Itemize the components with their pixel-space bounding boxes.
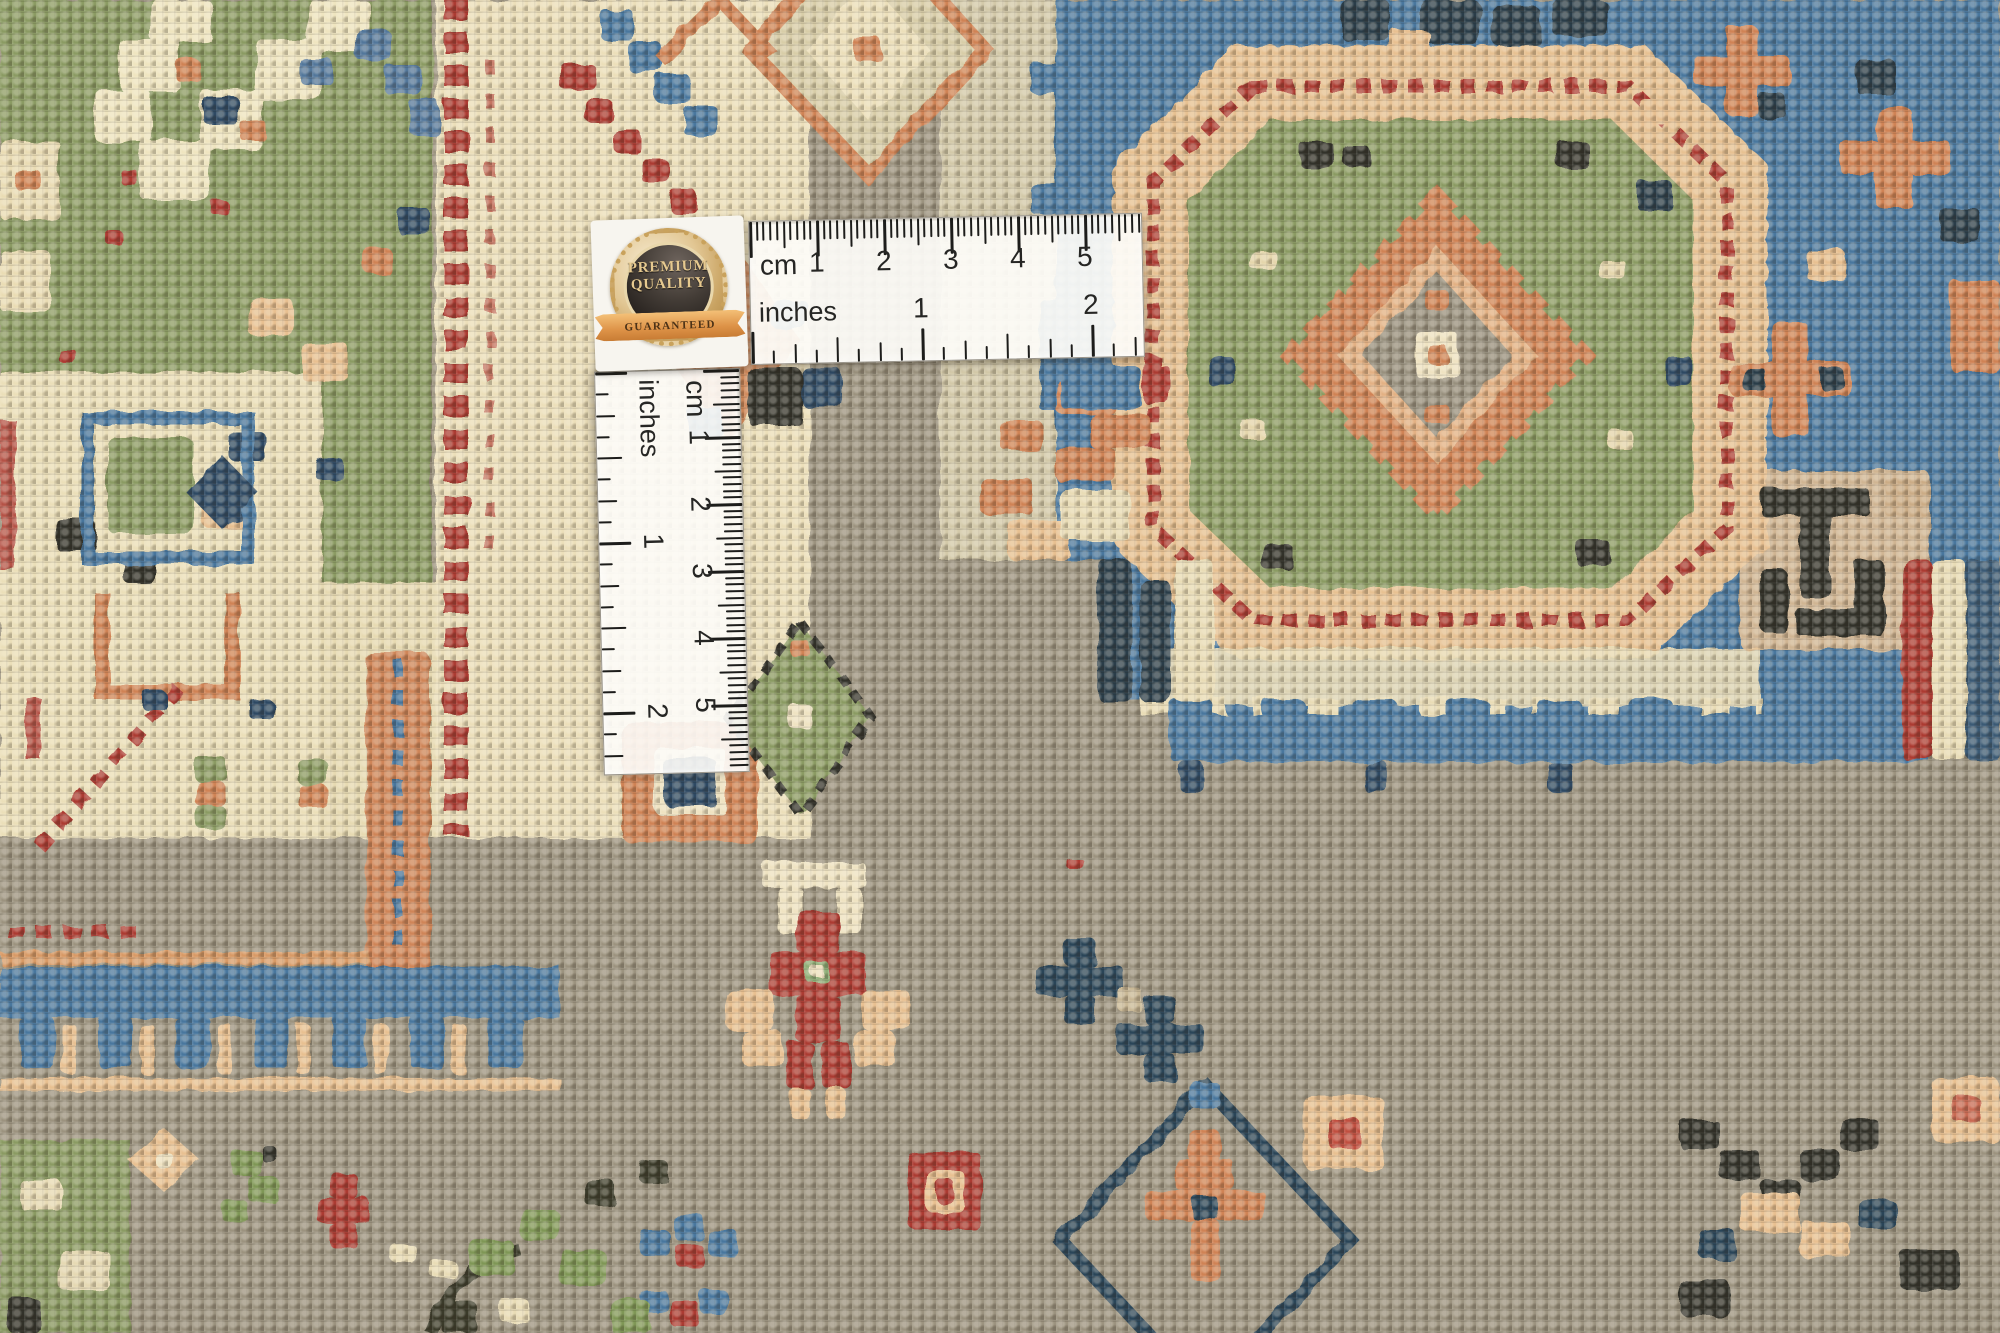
cm-number-4: 4 [687, 630, 719, 646]
ruler-vertical: cm 1 2 3 4 5 inches 1 2 [594, 368, 750, 775]
cm-number-1: 1 [682, 429, 714, 445]
badge-title: PREMIUM QUALITY [609, 257, 728, 295]
cm-unit-label: cm [679, 380, 712, 418]
badge-ribbon-label: GUARANTEED [624, 318, 716, 333]
cm-number-3: 3 [943, 244, 959, 276]
cm-number-2: 2 [684, 496, 716, 512]
cm-number-2: 2 [876, 245, 892, 277]
inch-number-2: 2 [641, 703, 673, 719]
ruler-horizontal: cm 1 2 3 4 5 inches 1 2 [748, 213, 1145, 365]
inch-number-2: 2 [1083, 289, 1099, 321]
inches-unit-label: inches [759, 296, 838, 329]
cm-number-5: 5 [689, 697, 721, 713]
inches-unit-label: inches [632, 379, 665, 458]
inch-number-1: 1 [913, 292, 929, 324]
cm-number-5: 5 [1077, 241, 1093, 273]
rug-photo: cm 1 2 3 4 5 inches 1 2 cm 1 2 3 4 5 inc… [0, 0, 2000, 1333]
rug-pattern [0, 0, 2000, 1333]
cm-number-3: 3 [686, 563, 718, 579]
badge-ribbon: GUARANTEED [595, 309, 746, 341]
inch-number-1: 1 [637, 533, 669, 549]
inch-tick-strip [751, 320, 1144, 364]
premium-quality-seal-icon: PREMIUM QUALITY GUARANTEED [608, 226, 730, 348]
cm-number-4: 4 [1010, 242, 1026, 274]
cm-unit-label: cm [760, 249, 798, 282]
quality-badge-sticker: PREMIUM QUALITY GUARANTEED [590, 215, 748, 371]
cm-number-1: 1 [809, 246, 825, 278]
